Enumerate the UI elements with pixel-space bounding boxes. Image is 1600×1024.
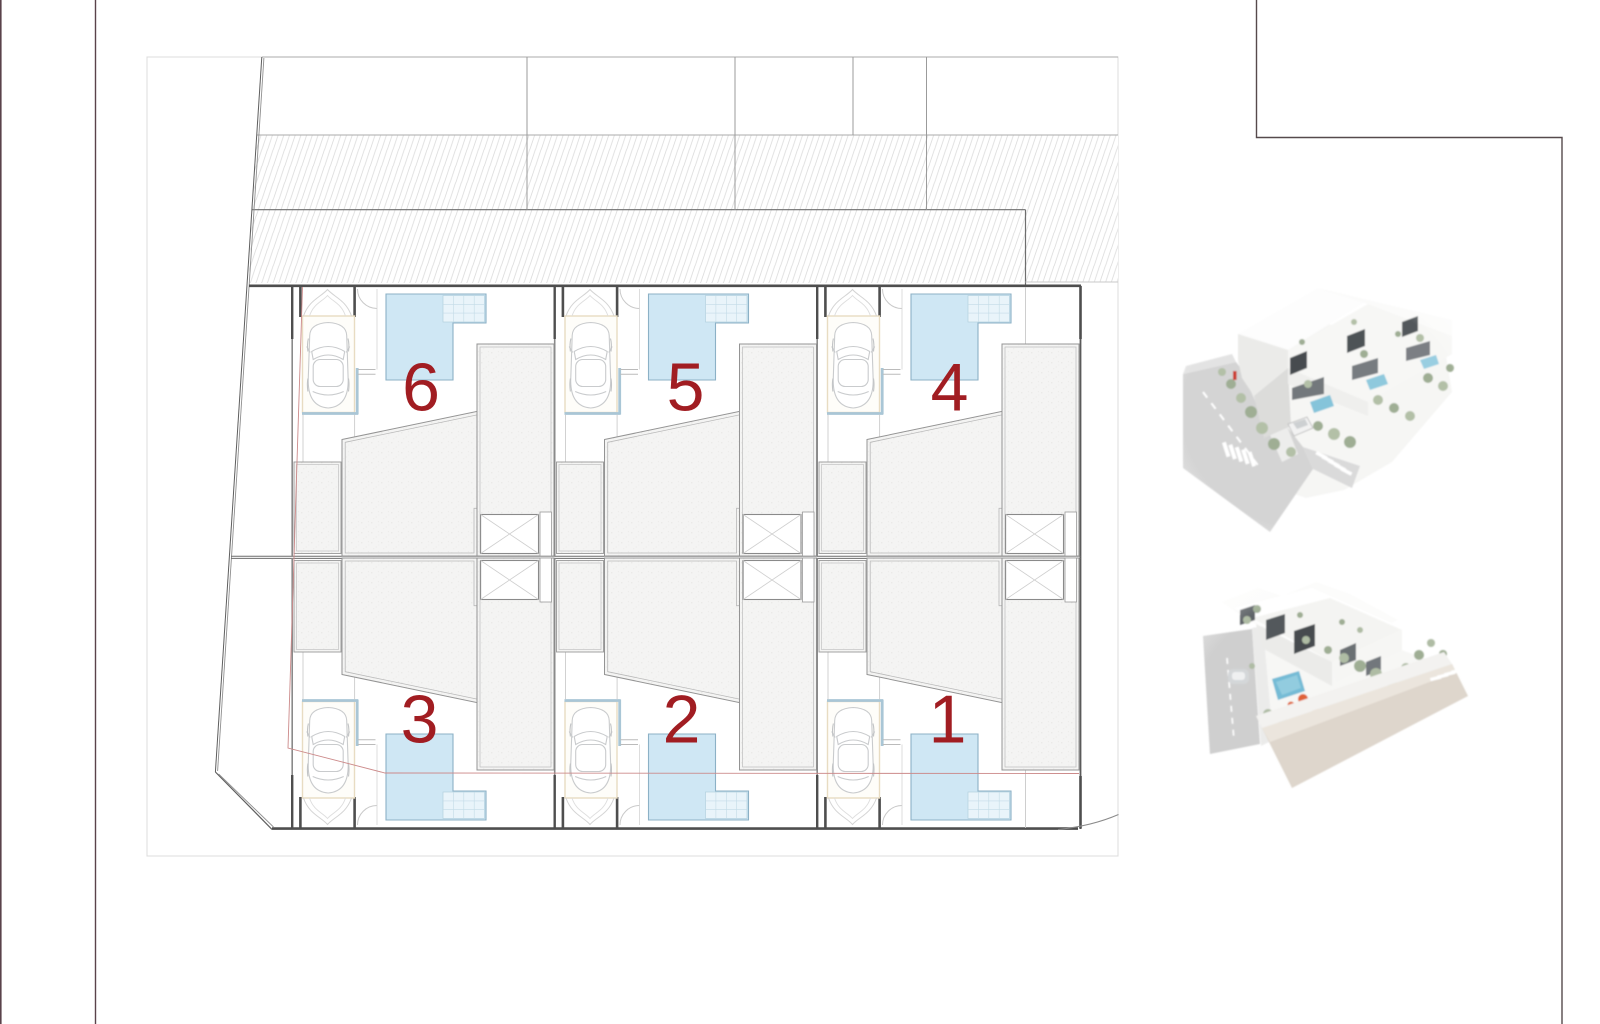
svg-text:4: 4 — [931, 350, 969, 426]
svg-text:5: 5 — [667, 350, 705, 426]
svg-text:1: 1 — [929, 682, 967, 758]
svg-text:3: 3 — [401, 682, 439, 758]
svg-text:6: 6 — [402, 350, 440, 426]
svg-text:2: 2 — [663, 682, 701, 758]
